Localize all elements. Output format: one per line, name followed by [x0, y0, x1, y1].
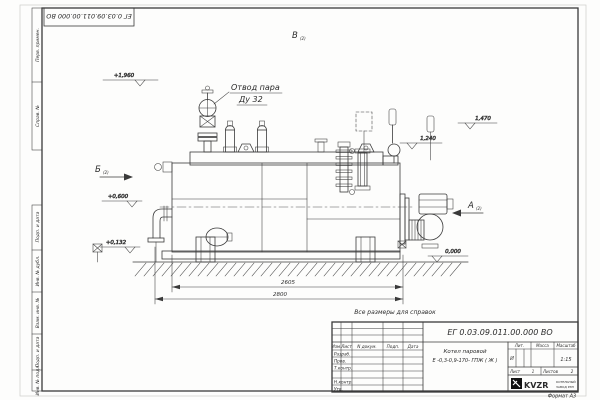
margin-label-vzam-inv: Взам. инв. №	[35, 297, 41, 328]
elevation-right-high: 1,470	[475, 116, 491, 122]
left-wall-valve	[155, 162, 173, 172]
sheet-frame	[20, 5, 586, 396]
safety-valve-2	[256, 121, 269, 152]
margin-label-perv-primen: Перв. примен.	[35, 28, 41, 62]
format-note: Формат А3	[548, 394, 576, 400]
col-data: Дата	[407, 344, 419, 349]
reference-note: Все размеры для справок	[354, 309, 436, 316]
row-prov: Пров.	[334, 359, 346, 364]
dim-inner: 2605	[281, 280, 295, 286]
view-a-sheet-ref: (2)	[476, 206, 482, 211]
scale-label: Масштаб	[556, 343, 576, 348]
brand-name: KVZR	[524, 381, 548, 390]
elevation-base: 0,000	[445, 249, 461, 255]
elevation-marks: +1,960 +0,600 +0,132 1,240 1,470 0,000	[100, 73, 497, 262]
view-v-label: В	[292, 31, 298, 41]
steam-outlet-valve	[198, 86, 217, 152]
sheet-value: 1	[532, 369, 535, 374]
margin-label-sprav-no: Справ. №	[35, 105, 41, 127]
safety-valve-1	[224, 121, 237, 152]
view-v-sheet-ref: (2)	[300, 36, 306, 41]
lit-value: И	[510, 356, 514, 362]
margin-labels: Перв. примен. Справ. № Подп. и дата Инв.…	[35, 28, 41, 395]
scale-value: 1:15	[560, 357, 571, 363]
manometer-loop	[388, 109, 400, 163]
product-name-line2: Е -0,3-0,9-170- ГПЖ ( Ж )	[433, 358, 498, 364]
boiler	[93, 86, 453, 262]
margin-columns	[32, 8, 42, 391]
view-b-arrow	[124, 174, 133, 181]
dim-overall: 2800	[273, 292, 287, 298]
margin-label-inv-podl: Инв. № подл.	[35, 364, 41, 395]
brand-logo: KVZR КОТЕЛЬНЫЙ ЗАВОД РЭП	[511, 378, 576, 390]
sheets-label: Листов	[542, 369, 559, 374]
row-razrab: Разраб.	[334, 352, 350, 357]
product-name-line1: Котел паровой	[443, 349, 487, 355]
view-marks: Б (2) А (2) В (2)	[95, 31, 483, 217]
elevation-left-mid: +0,600	[108, 194, 129, 200]
col-dokum: N докум.	[357, 344, 376, 349]
brand-sub2: ЗАВОД РЭП	[556, 385, 574, 389]
ground	[133, 262, 468, 276]
left-elbow-pipe	[148, 206, 172, 262]
callout-line2: Ду 32	[238, 95, 263, 104]
row-tkontr: Т.контр.	[334, 366, 352, 371]
titleblock-doc-number: ЕГ 0.03.09.011.00.000 ВО	[447, 328, 552, 337]
sheet-label: Лист	[509, 369, 521, 374]
margin-label-podp-data-2: Подп. и дата	[35, 336, 41, 367]
col-list: Лист	[340, 344, 352, 349]
col-izm: Изм.	[332, 344, 342, 349]
view-a-arrow	[452, 210, 461, 217]
ghost-component	[356, 112, 372, 152]
dimensions: 2605 2800	[155, 247, 403, 304]
mass-label: Масса	[536, 343, 549, 348]
brand-sub1: КОТЕЛЬНЫЙ	[556, 379, 576, 384]
margin-label-podp-data-1: Подп. и дата	[35, 211, 41, 242]
lit-label: Лит.	[514, 343, 524, 348]
boiler-shell	[160, 163, 414, 252]
view-b-label: Б	[95, 165, 101, 175]
burner	[400, 194, 453, 248]
water-level-column	[336, 142, 352, 192]
col-podp: Подп.	[387, 344, 400, 349]
sheets-value: 2	[571, 369, 574, 374]
view-b-sheet-ref: (2)	[103, 170, 109, 175]
steam-outlet-callout: Отвод пара Ду 32	[214, 83, 282, 105]
elevation-left-low: +0,132	[106, 240, 127, 246]
elevation-top: +1,960	[114, 73, 135, 79]
top-stamp-number: ЕГ 0.03.09.011.00.000 ВО	[46, 12, 132, 20]
row-utv: Утв.	[334, 387, 343, 392]
elevation-right-mid: 1,240	[420, 136, 436, 142]
top-stamp: ЕГ 0.03.09.011.00.000 ВО	[44, 8, 134, 26]
callout-line1: Отвод пара	[231, 83, 280, 92]
margin-label-inv-dubl: Инв. № дубл.	[35, 256, 41, 287]
platform-stub-fitting	[315, 139, 327, 152]
view-a-label: А	[467, 201, 474, 211]
drawing-sheet: Перв. примен. Справ. № Подп. и дата Инв.…	[0, 0, 600, 400]
gauge-glass	[350, 149, 371, 195]
title-block: ЕГ 0.03.09.011.00.000 ВО Котел паровой Е…	[332, 322, 578, 392]
base-frame	[162, 237, 400, 262]
row-nkontr: Н.контр.	[334, 380, 353, 385]
floor-drain-valve	[93, 244, 102, 262]
